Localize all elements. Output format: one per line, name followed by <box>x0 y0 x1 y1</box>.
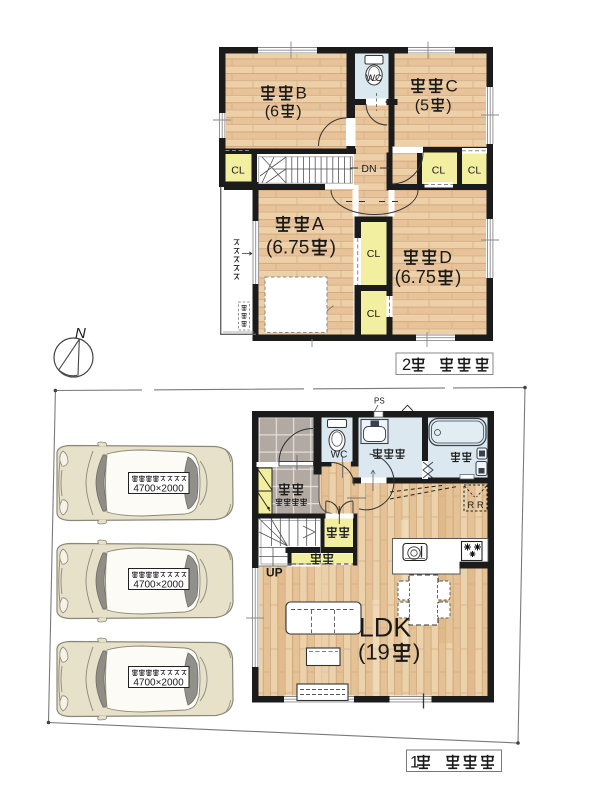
svg-text:(5: (5 <box>415 97 429 114</box>
svg-text:): ) <box>413 640 420 665</box>
svg-text:LDK: LDK <box>359 613 412 643</box>
svg-text:4700×2000: 4700×2000 <box>133 484 184 495</box>
svg-text:D: D <box>439 247 452 267</box>
svg-text:WC: WC <box>331 450 348 461</box>
svg-text:DN: DN <box>361 163 376 175</box>
svg-text:(6: (6 <box>265 103 279 120</box>
svg-text:): ) <box>446 97 451 114</box>
svg-text:CL: CL <box>367 248 381 260</box>
svg-text:CL: CL <box>468 165 482 177</box>
svg-text:(6.75: (6.75 <box>266 237 309 258</box>
svg-text:UP: UP <box>266 566 283 580</box>
svg-text:PS: PS <box>374 397 385 406</box>
svg-text:B: B <box>296 84 307 103</box>
svg-text:N: N <box>75 325 86 342</box>
svg-text:(6.75: (6.75 <box>395 267 436 287</box>
svg-text:CL: CL <box>231 165 245 177</box>
svg-text:): ) <box>296 103 301 120</box>
svg-text:WC: WC <box>366 73 382 84</box>
svg-text:R R: R R <box>467 500 484 511</box>
svg-text:CL: CL <box>432 165 446 177</box>
svg-text:): ) <box>455 267 461 287</box>
svg-text:C: C <box>446 76 458 95</box>
svg-text:2: 2 <box>402 356 411 374</box>
svg-text:A: A <box>312 214 324 234</box>
svg-text:): ) <box>330 237 336 258</box>
svg-text:CL: CL <box>367 308 381 320</box>
svg-text:(19: (19 <box>358 640 390 665</box>
